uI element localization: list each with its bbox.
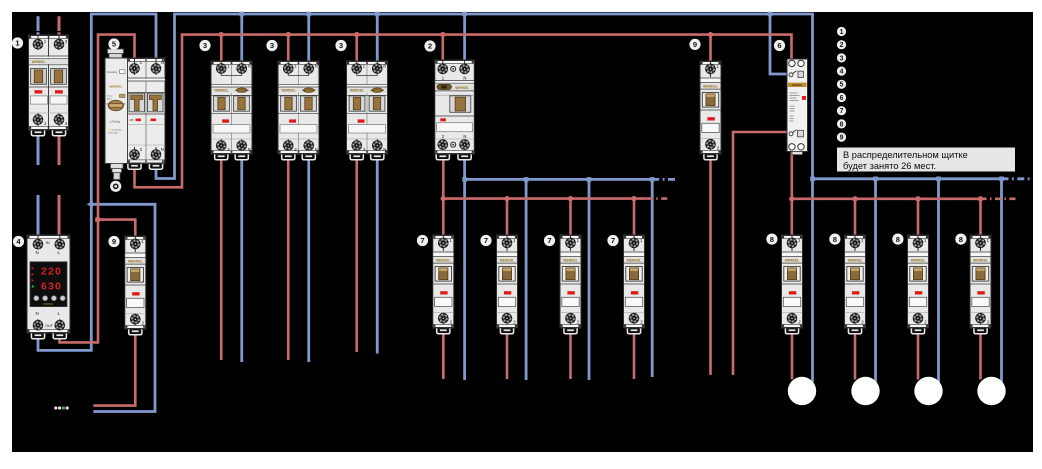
- svg-text:2: 2: [840, 42, 844, 49]
- svg-text:N: N: [161, 147, 164, 152]
- svg-text:WERKEL: WERKEL: [455, 86, 469, 90]
- svg-text:WERKEL: WERKEL: [32, 60, 46, 64]
- svg-text:N: N: [36, 250, 39, 255]
- svg-text:7: 7: [420, 236, 424, 245]
- svg-text:9: 9: [693, 40, 697, 49]
- svg-text:8: 8: [833, 235, 837, 244]
- svg-text:7: 7: [840, 108, 844, 115]
- svg-text:3: 3: [270, 41, 274, 50]
- svg-text:5: 5: [840, 82, 844, 89]
- svg-text:N: N: [161, 60, 164, 65]
- svg-text:8: 8: [840, 121, 844, 128]
- svg-text:3: 3: [840, 55, 844, 62]
- svg-text:В распределительном щитке: В распределительном щитке: [843, 150, 968, 160]
- svg-text:3: 3: [339, 41, 343, 50]
- svg-text:9: 9: [112, 237, 116, 246]
- svg-text:9: 9: [840, 135, 844, 142]
- svg-text:3: 3: [203, 41, 207, 50]
- svg-text:220V 63A: 220V 63A: [108, 132, 118, 135]
- svg-text:6: 6: [777, 41, 781, 50]
- svg-text:WERKEL: WERKEL: [43, 303, 54, 306]
- svg-text:Operating: Operating: [107, 71, 118, 74]
- svg-text:2: 2: [428, 42, 432, 51]
- svg-text:DB: DB: [130, 118, 134, 122]
- svg-text:8: 8: [896, 235, 900, 244]
- svg-text:N: N: [463, 75, 466, 80]
- svg-text:630: 630: [41, 280, 62, 292]
- svg-text:N: N: [463, 134, 466, 139]
- svg-text:OUT: OUT: [45, 324, 53, 328]
- svg-text:будет занято 26 мест.: будет занято 26 мест.: [843, 161, 936, 171]
- svg-text:7: 7: [484, 236, 488, 245]
- svg-text:6: 6: [840, 95, 844, 102]
- svg-text:WERKEL: WERKEL: [792, 83, 804, 87]
- svg-text:220: 220: [41, 266, 62, 278]
- svg-text:⚡ RusShield: ⚡ RusShield: [108, 129, 122, 132]
- svg-text:Close: Close: [107, 95, 113, 97]
- svg-text:4: 4: [840, 69, 844, 76]
- svg-text:7: 7: [611, 236, 615, 245]
- svg-text:8: 8: [770, 235, 774, 244]
- svg-text:7: 7: [547, 236, 551, 245]
- svg-text:N: N: [36, 311, 39, 316]
- svg-text:WERKEL: WERKEL: [110, 85, 123, 89]
- svg-text:Auto: Auto: [107, 98, 112, 101]
- svg-text:8: 8: [959, 235, 963, 244]
- svg-text:IN: IN: [46, 240, 50, 245]
- svg-text:⏻ Testing: ⏻ Testing: [110, 121, 121, 124]
- svg-text:1: 1: [840, 29, 844, 36]
